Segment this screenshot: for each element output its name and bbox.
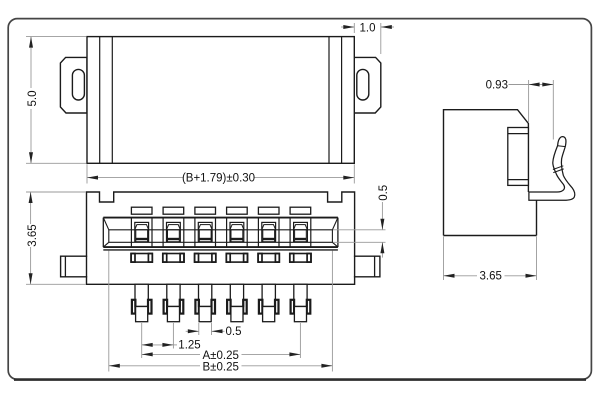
svg-text:3.65: 3.65 — [480, 271, 502, 283]
svg-text:0.5: 0.5 — [378, 185, 390, 201]
svg-text:B±0.25: B±0.25 — [203, 361, 239, 373]
svg-text:3.65: 3.65 — [27, 224, 39, 246]
svg-text:1.25: 1.25 — [178, 339, 200, 351]
svg-text:5.0: 5.0 — [27, 91, 39, 107]
svg-text:0.5: 0.5 — [226, 326, 242, 338]
svg-text:A±0.25: A±0.25 — [203, 350, 239, 362]
svg-text:(B+1.79)±0.30: (B+1.79)±0.30 — [182, 172, 255, 184]
svg-text:1.0: 1.0 — [360, 23, 376, 35]
svg-text:0.93: 0.93 — [486, 79, 508, 91]
